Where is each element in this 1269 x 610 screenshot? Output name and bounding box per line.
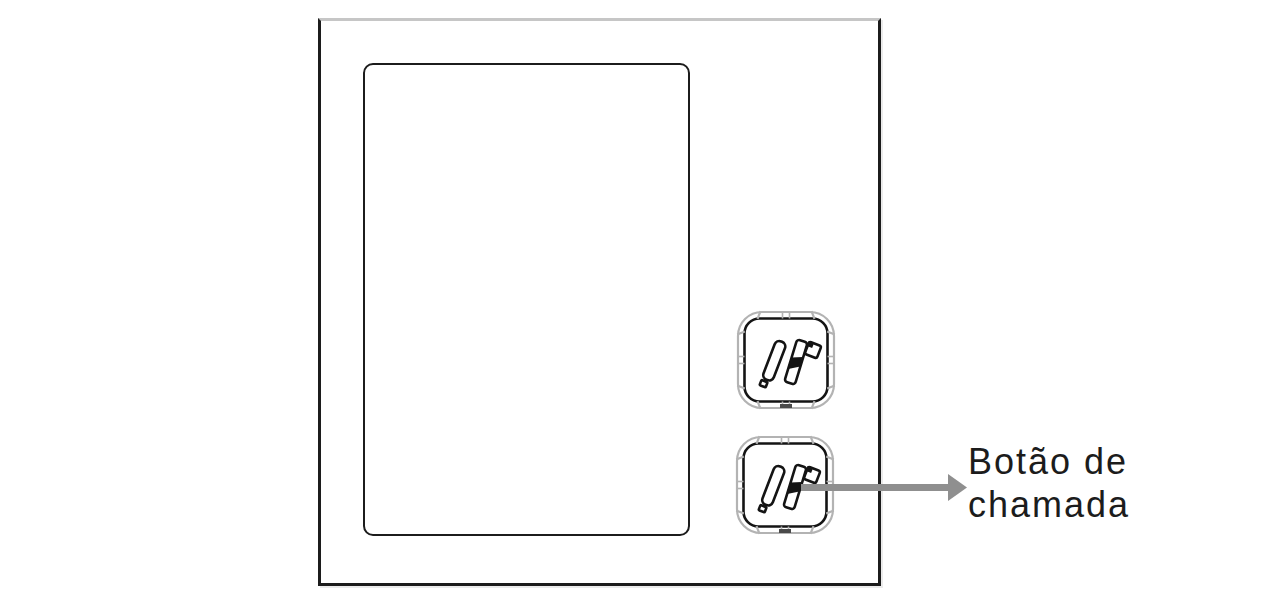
display-screen-area	[363, 63, 690, 536]
bezel-corner-ticks	[737, 311, 835, 409]
callout-label-line1: Botão de	[968, 440, 1130, 483]
button-bezel-ring	[737, 311, 835, 409]
bezel-mid-edge-ticks	[738, 312, 834, 408]
bezel-bottom-tab	[779, 529, 791, 533]
callout-arrow	[795, 468, 980, 508]
arrowhead-icon	[948, 474, 967, 501]
callout-label: Botão de chamada	[968, 440, 1130, 526]
call-button-top	[736, 310, 836, 410]
bezel-bottom-tab	[780, 404, 792, 408]
diagram-canvas: Botão de chamada	[0, 0, 1269, 610]
finger-press-button-icon	[759, 339, 821, 388]
callout-label-line2: chamada	[968, 483, 1130, 526]
